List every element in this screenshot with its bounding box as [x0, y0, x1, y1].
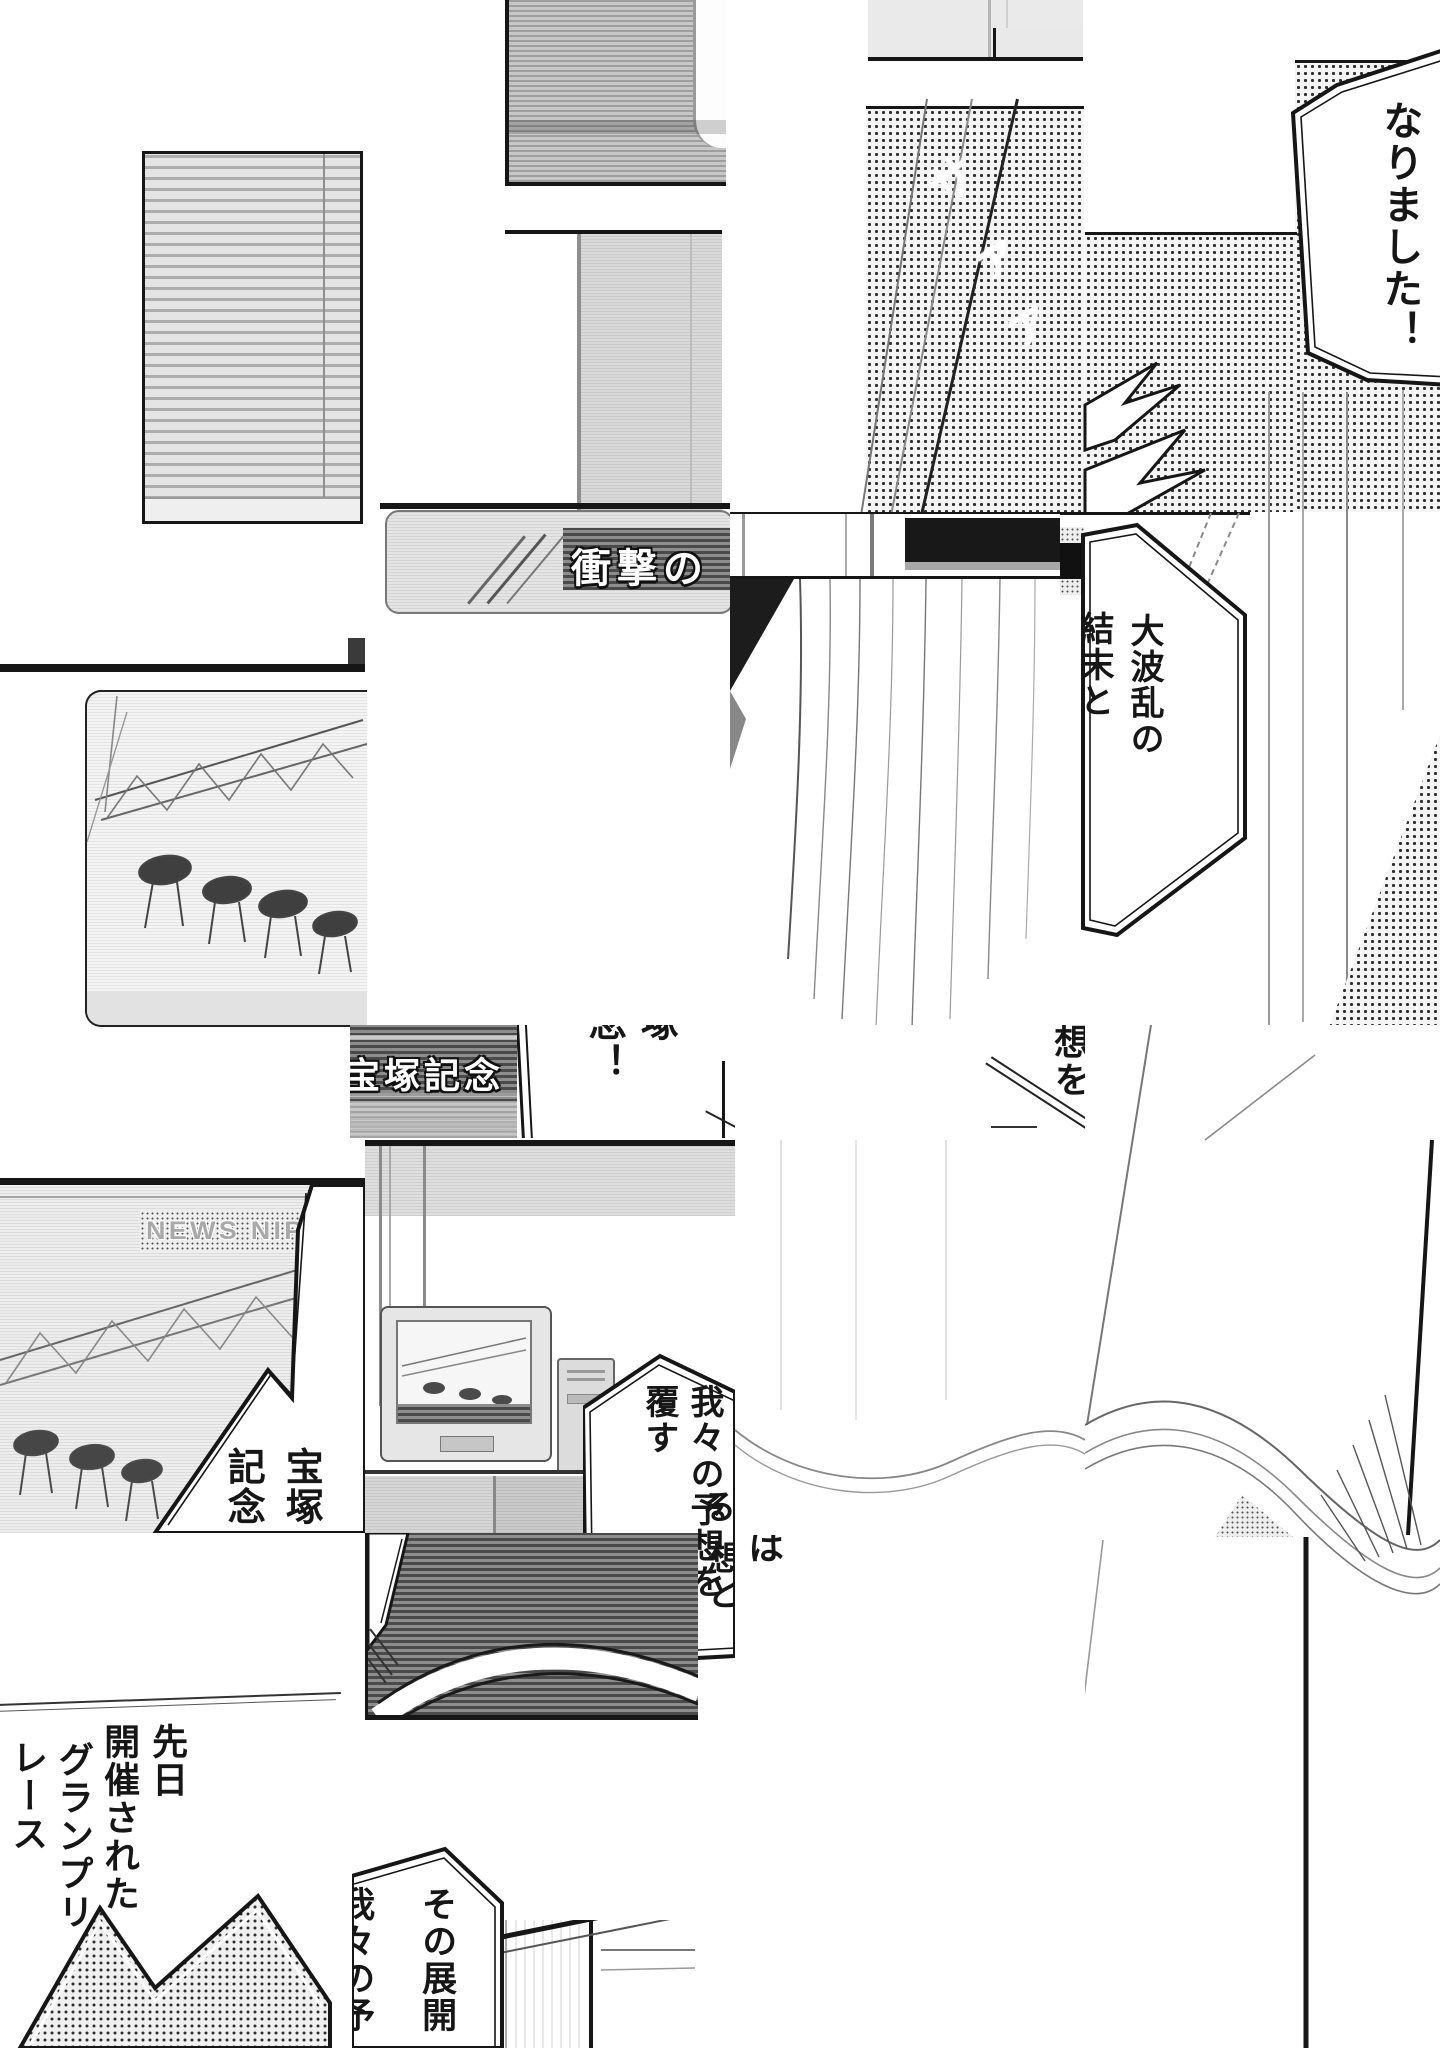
tv-reflection-swoosh [368, 1533, 698, 1715]
fragment-dark [348, 638, 365, 664]
frag-ru: る [702, 1480, 735, 1524]
panel-frag-souwo: 想を [735, 1025, 1085, 1140]
panel-tv-closeup-dark [365, 1533, 698, 1720]
panel-tone-topright-left [1085, 232, 1297, 515]
tv-caption-band: 衝撃の [563, 528, 732, 590]
tile-edge-line [722, 1061, 725, 1138]
bubble-text-wareware-2: 覆す [641, 1384, 677, 1456]
bubble-text-takarazuka-2: 記念 [222, 1447, 262, 1527]
panel-tv-news: NEWS NIP 宝塚 記念 [0, 1185, 365, 1533]
sfx-saaa-char: ァ [988, 280, 1062, 360]
panel-tv-race [85, 690, 367, 1027]
bubble-edge-line [517, 1025, 525, 1138]
bubble-text-kinen-left: 念！ [583, 1025, 623, 1083]
drawer-front-left [365, 1476, 496, 1539]
sfx-saaa-char: サ [913, 138, 989, 218]
wall-shaded [581, 234, 722, 519]
bubble-text-narimashita: なりました！ [1378, 100, 1420, 360]
mini-caption-band [398, 1404, 530, 1422]
banner-light-band [350, 1035, 517, 1040]
frag-ru-clip: る [700, 1478, 735, 1524]
panel-bubble-kinen-frag: 塚 念！ [517, 1025, 735, 1138]
curtain-fold-line [1302, 392, 1304, 1022]
shelf-line [742, 514, 745, 578]
bubble-text-daiharan-2: 結末と [1076, 611, 1112, 719]
bubble-text-sono-1: その展開 [418, 1886, 455, 2034]
panel-border [380, 503, 730, 509]
crt-monitor [380, 1306, 552, 1462]
bubble-sono-clip: その展開 我々の予 [352, 1842, 505, 2048]
panel-bubble-senjitsu: 先日 開催された グランプリ レース [0, 1533, 365, 2048]
wall-line [988, 0, 991, 57]
bubble-tail-zigzag [1085, 235, 1297, 515]
panel-wall-corner [505, 230, 722, 519]
banner-lower [350, 1101, 517, 1138]
crt-stand [440, 1436, 494, 1452]
tone-wedge [1250, 735, 1440, 1025]
sfx-saaa-char: ァ [955, 214, 1030, 294]
shelf-line [845, 514, 847, 578]
panel-curtain-hem-mid [735, 1140, 1085, 1535]
manga-page: { "page_type": "scrambled-manga-page", "… [0, 0, 1440, 2048]
panel-tv-takarazuka-banner: 宝塚記念 [350, 1025, 517, 1138]
wall-shaded-band [365, 1146, 735, 1216]
blind-bottom-rail [145, 497, 360, 521]
bubble-text-daiharan-1: 大波乱の [1126, 613, 1162, 757]
tv-stand [905, 562, 1067, 570]
panel-tv-shougeki: 衝撃の [385, 510, 734, 614]
bubble-text-kinen-right: 塚 [635, 1025, 675, 1043]
tv-caption-takarazuka: 宝塚記念 [350, 1047, 504, 1099]
curtain-fold-line [1402, 390, 1404, 710]
panel-border [0, 664, 365, 672]
bubble-edge-line [525, 1025, 534, 1138]
bubble-text-sono-2: 我々の予 [352, 1886, 373, 2034]
bubble-edge-frag [991, 1126, 1037, 1128]
bubble-text-takarazuka-1: 宝塚 [280, 1447, 320, 1527]
curtain-hem-wave [735, 1140, 1085, 1535]
frag-souto-clip: 想と [703, 1540, 735, 1660]
blind-cord-line [323, 154, 325, 521]
crt-screen [396, 1320, 532, 1424]
panel-fragment-small [993, 28, 1081, 60]
race-gate-sketch [87, 692, 367, 1025]
bubble-edge-frag [705, 1110, 735, 1133]
frag-souto: 想と [703, 1540, 735, 1612]
panel-tv-edge-top [505, 0, 726, 186]
panel-room-strip [730, 512, 1085, 578]
dark-tv-screen [905, 518, 1067, 562]
frag-souwo-text: 想を [1050, 1025, 1085, 1099]
panel-border [0, 1178, 365, 1185]
banner-light-band [350, 1093, 517, 1097]
panel-curtain-tone: サ ァ ァ [866, 106, 1084, 515]
panel-bubble-daiharan: 大波乱の 結末と [1060, 512, 1250, 955]
panel-curtain-hem-right [1085, 1025, 1440, 2048]
scan-shadow-band [509, 120, 726, 134]
panel-window-blinds [142, 151, 363, 524]
bubble-sono-col2-clip: 我々の予 [352, 1886, 398, 2048]
bubble-tail-spikes [0, 1533, 365, 2048]
curtain-drawing [730, 579, 1060, 1028]
shelf-line [870, 514, 874, 578]
panel-curtain-closeup [730, 576, 1060, 1028]
tv-caption-shougeki: 衝撃の [571, 536, 709, 590]
wall-line [690, 234, 692, 519]
